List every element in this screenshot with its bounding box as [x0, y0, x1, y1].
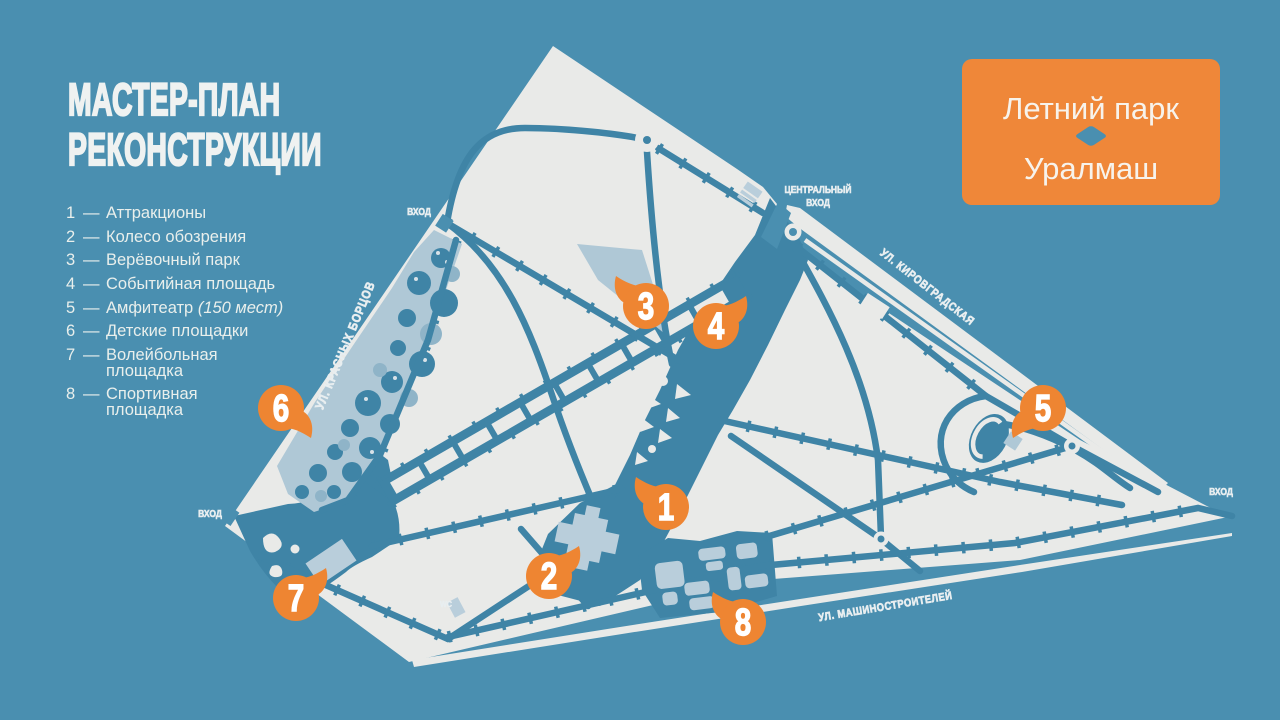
- svg-text:2: 2: [541, 556, 557, 598]
- svg-text:7: 7: [288, 578, 304, 620]
- svg-text:ВХОД: ВХОД: [198, 508, 222, 519]
- svg-text:8: 8: [735, 602, 751, 644]
- svg-text:1: 1: [658, 487, 674, 529]
- svg-text:WC: WC: [440, 599, 452, 609]
- svg-text:3: 3: [638, 286, 654, 328]
- svg-text:ВХОД: ВХОД: [806, 197, 830, 208]
- svg-text:4: 4: [708, 306, 725, 348]
- svg-text:6: 6: [273, 388, 289, 430]
- svg-text:ВХОД: ВХОД: [1209, 486, 1233, 497]
- svg-text:ВХОД: ВХОД: [407, 206, 431, 217]
- svg-text:ЦЕНТРАЛЬНЫЙ: ЦЕНТРАЛЬНЫЙ: [785, 183, 852, 195]
- svg-text:5: 5: [1035, 388, 1051, 430]
